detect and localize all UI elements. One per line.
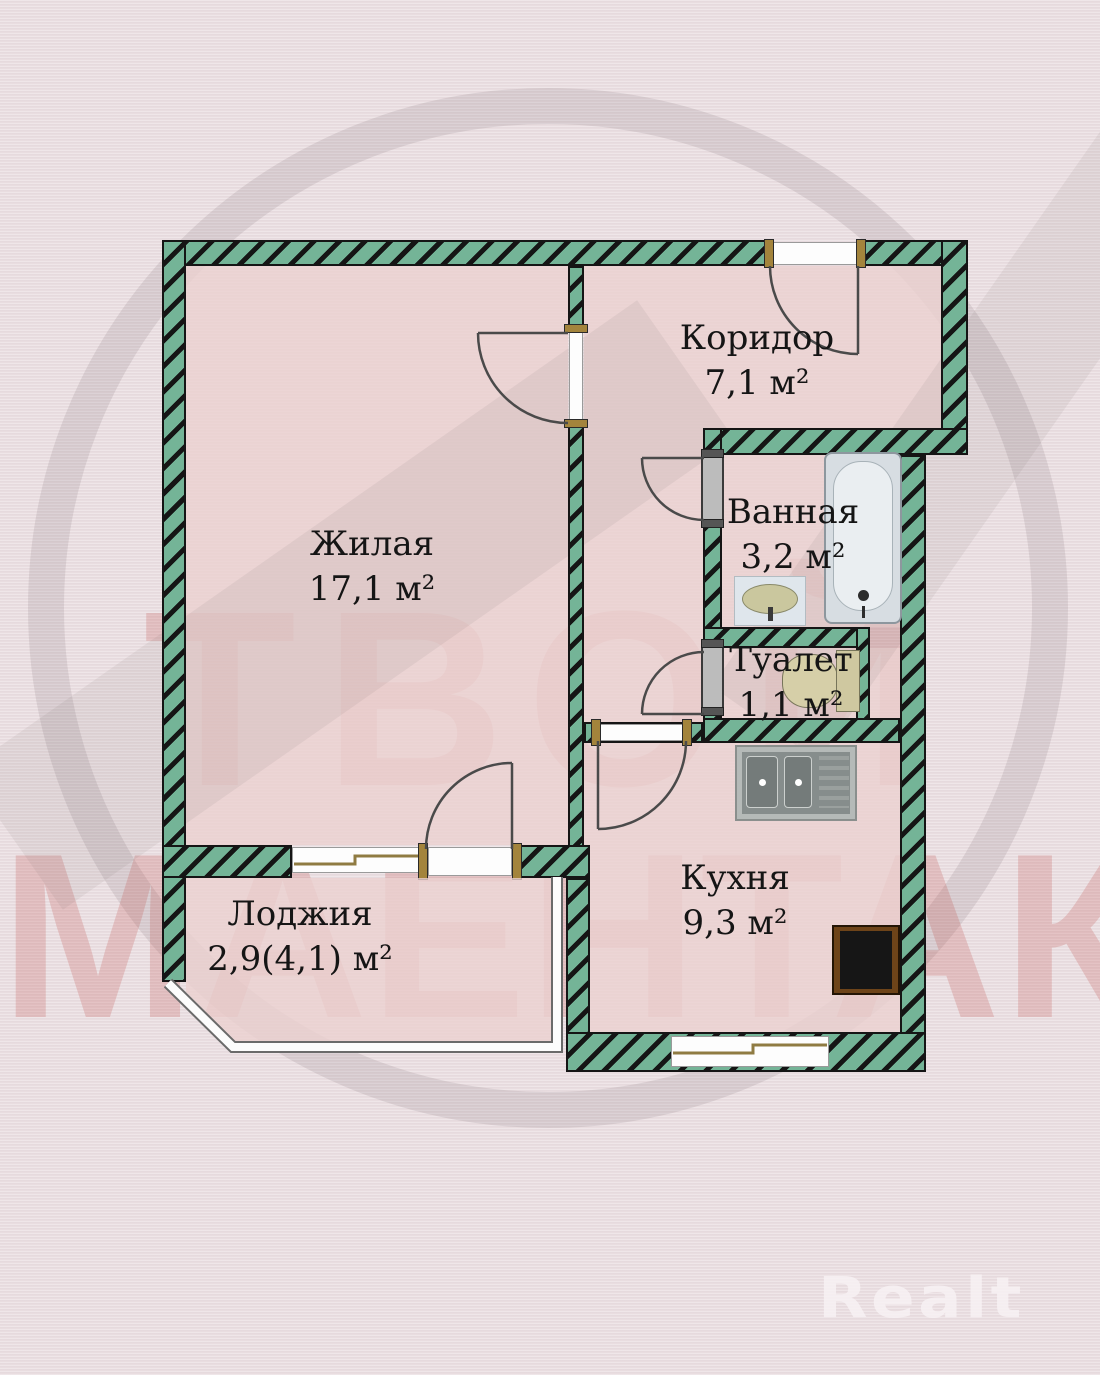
floor-plan-canvas: ТВОЙ МАЕНТАК: [0, 0, 1100, 1375]
room-name: Лоджия: [170, 892, 430, 937]
room-area: 7,1 м²: [627, 361, 887, 406]
room-name: Кухня: [605, 856, 865, 901]
realt-logo: Realt: [818, 1266, 1025, 1331]
room-name: Жилая: [242, 522, 502, 567]
room-label-bathroom: Ванная 3,2 м²: [663, 490, 923, 580]
room-name: Туалет: [661, 638, 921, 683]
room-area: 2,9(4,1) м²: [170, 937, 430, 982]
room-label-toilet: Туалет 1,1 м²: [661, 638, 921, 728]
room-label-kitchen: Кухня 9,3 м²: [605, 856, 865, 946]
room-name: Коридор: [627, 316, 887, 361]
room-area: 3,2 м²: [663, 535, 923, 580]
door-swing-arc: [426, 763, 512, 849]
window-sill: [294, 856, 418, 864]
plan-linework: [0, 0, 1100, 1375]
room-area: 17,1 м²: [242, 567, 502, 612]
door-swing-arc: [478, 333, 568, 423]
window-sill: [673, 1045, 827, 1053]
door-swing-arc: [598, 741, 686, 829]
room-label-loggia: Лоджия 2,9(4,1) м²: [170, 892, 430, 982]
room-label-living: Жилая 17,1 м²: [242, 522, 502, 612]
room-area: 1,1 м²: [661, 683, 921, 728]
room-label-corridor: Коридор 7,1 м²: [627, 316, 887, 406]
room-name: Ванная: [663, 490, 923, 535]
room-area: 9,3 м²: [605, 901, 865, 946]
